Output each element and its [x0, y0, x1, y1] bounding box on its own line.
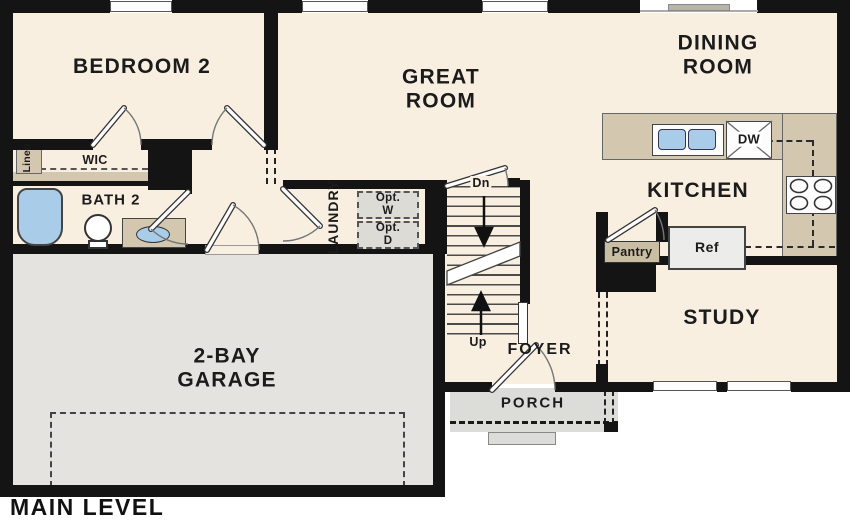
wall [172, 0, 302, 13]
label-optional-dryer: Opt. D [376, 222, 400, 248]
room-label-wic: WIC [82, 153, 107, 167]
room-label-dining-room: DINING ROOM [678, 31, 759, 78]
counter-dashed-bottom [745, 246, 835, 248]
closet-rod-dashed [40, 168, 148, 170]
wall [192, 139, 212, 150]
floor-plan: BEDROOM 2 GREAT ROOM DINING ROOM KITCHEN… [0, 0, 850, 520]
bathtub-fixture [17, 188, 63, 246]
garage-door-dashed-outline [50, 412, 405, 487]
range-fixture [786, 176, 836, 214]
wall-garage-right [433, 244, 445, 497]
wall-study-corner [596, 262, 656, 292]
label-refrigerator: Ref [695, 240, 719, 256]
room-label-foyer: FOYER [507, 341, 572, 359]
window-greatroom-1 [302, 1, 368, 12]
sink-basin-right [688, 129, 716, 150]
window-greatroom-2 [482, 1, 548, 12]
staircase [447, 186, 520, 340]
room-label-porch: PORCH [501, 396, 565, 413]
porch-front-dashed [450, 421, 618, 424]
wall-foyer-bottom [440, 382, 492, 392]
sink-basin-left [658, 129, 686, 150]
wall-right-exterior [837, 0, 850, 392]
room-label-garage: 2-BAY GARAGE [177, 344, 276, 391]
plan-title: MAIN LEVEL [10, 494, 164, 520]
wall-stair-stub [508, 178, 520, 187]
stair-railing [518, 302, 528, 344]
porch-post [604, 422, 618, 432]
label-stairs-up: Up [467, 335, 488, 349]
label-stairs-down: Dn [470, 176, 491, 190]
toilet-bowl-fixture [84, 214, 112, 242]
study-opening-dashed [598, 292, 608, 366]
label-optional-washer: Opt. W [376, 192, 400, 218]
wall-laundry-top [283, 180, 447, 189]
label-dishwasher: DW [736, 132, 762, 147]
toilet-tank-fixture [88, 240, 108, 249]
window-study-1 [653, 381, 717, 391]
wall-stair-right [520, 180, 530, 304]
wall-laundry-right [425, 180, 447, 254]
porch-edge-dashed [604, 390, 614, 424]
room-label-bath2: BATH 2 [81, 193, 140, 210]
wall-bedroom-right [264, 13, 278, 150]
porch-step [488, 432, 556, 445]
wall [548, 0, 640, 13]
hall-opening-dashed [266, 148, 276, 184]
wall-bath-stub [185, 184, 192, 194]
wall [0, 0, 110, 13]
room-label-linen: Linen [22, 144, 34, 173]
wall-study-bottom-2 [791, 382, 844, 392]
garage-door-threshold [205, 245, 259, 255]
window-bedroom2 [110, 1, 172, 12]
room-label-kitchen: KITCHEN [647, 179, 749, 203]
label-pantry: Pantry [612, 245, 653, 259]
wall-window-stub [717, 382, 727, 392]
room-label-great-room: GREAT ROOM [402, 65, 480, 112]
dining-window-bar [668, 4, 730, 11]
bath-sink-fixture [136, 226, 170, 243]
wall-bath-top [13, 181, 192, 186]
wall [368, 0, 482, 13]
room-label-bedroom2: BEDROOM 2 [73, 55, 211, 79]
wall-study-bottom-1 [555, 382, 653, 392]
wall-pantry-right [656, 212, 668, 242]
room-label-laundry: LAUNDRY [326, 180, 342, 255]
room-label-study: STUDY [683, 306, 760, 330]
window-study-2 [727, 381, 791, 391]
wall [141, 139, 148, 150]
